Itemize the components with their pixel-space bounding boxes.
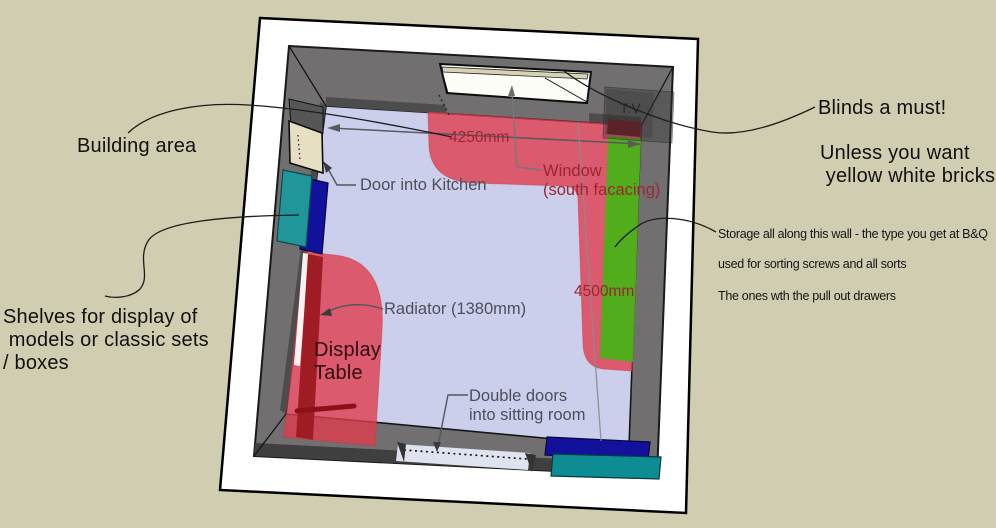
shelf-teal-left (277, 170, 312, 247)
table-teal-bottom (551, 454, 661, 479)
shelves-label: Shelves for display of models or classic… (3, 306, 209, 375)
door-kitchen-label: Door into Kitchen (360, 176, 487, 195)
storage-note-line3: The ones wth the pull out drawers (718, 289, 896, 303)
unless-label: Unless you want yellow white bricks (820, 142, 995, 188)
tv-label: T.V (620, 97, 641, 120)
radiator-label: Radiator (1380mm) (384, 300, 526, 319)
storage-note-line2: used for sorting screws and all sorts (718, 257, 906, 271)
storage-note-line1: Storage all along this wall - the type y… (718, 227, 988, 241)
dimension-4250-label: 4250mm (449, 126, 509, 149)
floor-plan-page: { "scene_title": "Room floor plan sketch… (0, 0, 996, 528)
blinds-label: Blinds a must! (818, 97, 946, 120)
dimension-4500-label: 4500mm (574, 280, 634, 303)
double-doors-label: Double doors into sitting room (469, 387, 585, 425)
building-area-label: Building area (77, 135, 196, 158)
display-table-label: Display Table (314, 339, 381, 385)
window-label: Window (south facacing) (543, 162, 660, 200)
